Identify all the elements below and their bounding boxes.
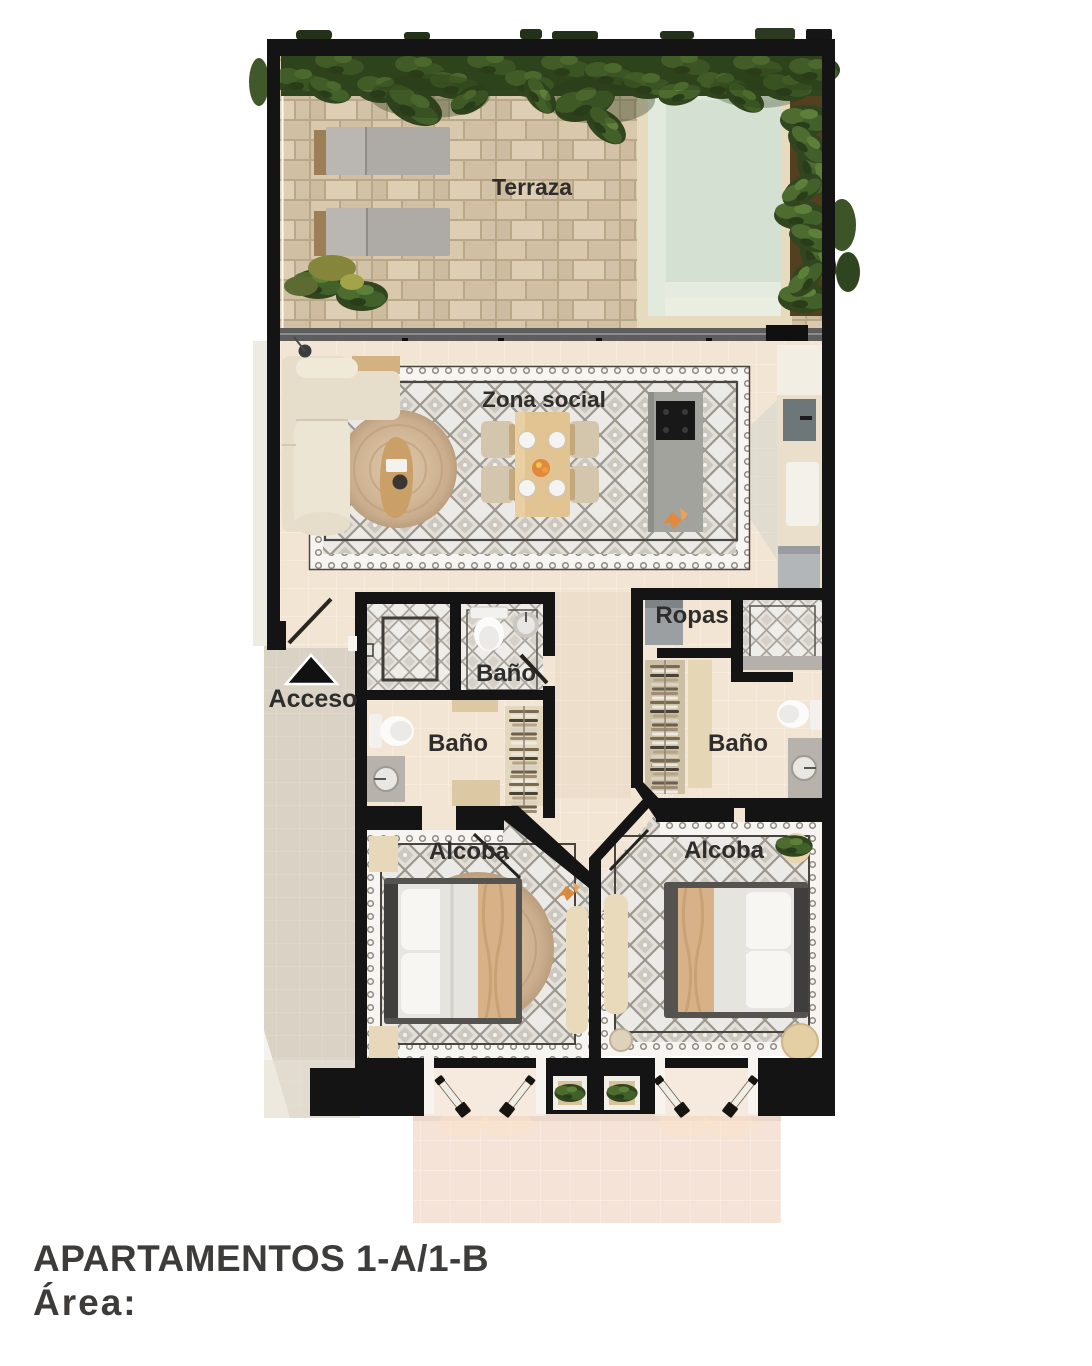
svg-text:Baño: Baño [708,730,768,757]
svg-text:APARTAMENTOS 1-A/1-B: APARTAMENTOS 1-A/1-B [33,1238,489,1279]
svg-text:Área:: Área: [33,1282,138,1323]
svg-text:Alcoba: Alcoba [684,837,765,864]
svg-text:Terraza: Terraza [492,174,572,200]
svg-text:Baño: Baño [428,730,488,757]
svg-text:Alcoba: Alcoba [429,838,510,865]
svg-text:Acceso: Acceso [269,685,358,713]
svg-text:Baño: Baño [476,660,536,687]
svg-text:Zona social: Zona social [482,387,606,412]
svg-text:Ropas: Ropas [655,602,728,629]
